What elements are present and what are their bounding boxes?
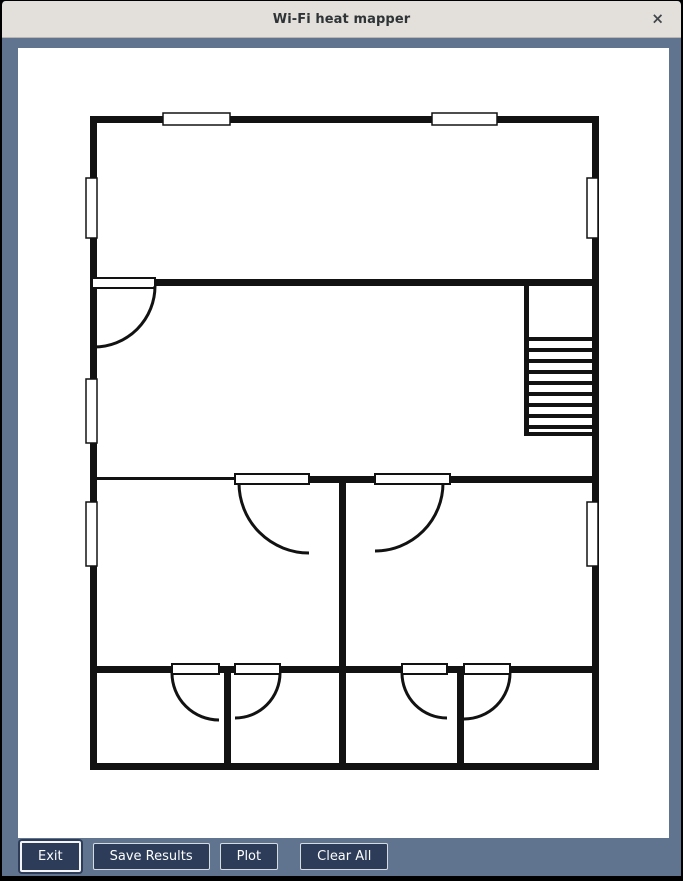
- door-swing-arc: [375, 483, 443, 551]
- door-leaf: [464, 664, 510, 674]
- door-leaf: [402, 664, 447, 674]
- plot-button[interactable]: Plot: [220, 843, 279, 870]
- stair-step: [529, 432, 592, 436]
- stair-step: [529, 414, 592, 418]
- floorplan-canvas[interactable]: [18, 48, 669, 838]
- door-leaf: [235, 664, 280, 674]
- stair-step: [529, 370, 592, 374]
- door-leaf: [235, 474, 309, 484]
- wall-segment: [155, 279, 599, 286]
- wall-segment: [524, 286, 529, 436]
- door-leaf: [375, 474, 450, 484]
- exit-button[interactable]: Exit: [20, 841, 81, 872]
- stair-step: [529, 425, 592, 429]
- window-title: Wi-Fi heat mapper: [273, 12, 411, 27]
- door-leaf: [172, 664, 219, 674]
- close-icon[interactable]: ×: [647, 10, 668, 29]
- window-marker: [86, 379, 97, 443]
- window-marker: [587, 502, 598, 566]
- title-bar[interactable]: Wi-Fi heat mapper ×: [2, 1, 681, 38]
- door-swing-arc: [235, 673, 280, 718]
- door-swing-arc: [94, 286, 155, 347]
- stair-step: [529, 359, 592, 363]
- door-leaf: [92, 278, 155, 288]
- door-swing-arc: [239, 483, 309, 553]
- stair-step: [529, 392, 592, 396]
- stair-step: [529, 381, 592, 385]
- save-results-button[interactable]: Save Results: [93, 843, 210, 870]
- wall-segment: [97, 477, 235, 480]
- wall-segment: [339, 476, 346, 770]
- window-marker: [86, 502, 97, 566]
- wall-segment: [309, 476, 599, 483]
- window-marker: [86, 178, 97, 238]
- door-swing-arc: [402, 673, 447, 718]
- window-marker: [163, 113, 230, 125]
- floorplan-svg[interactable]: [18, 48, 669, 838]
- clear-all-button[interactable]: Clear All: [300, 843, 388, 870]
- app-window: Wi-Fi heat mapper × Exit Save Results Pl…: [0, 0, 683, 881]
- window-marker: [432, 113, 497, 125]
- button-bar: Exit Save Results Plot Clear All: [2, 837, 681, 876]
- stair-step: [529, 337, 592, 341]
- door-swing-arc: [464, 673, 510, 719]
- window-marker: [587, 178, 598, 238]
- stair-step: [529, 348, 592, 352]
- stair-step: [529, 403, 592, 407]
- wall-segment: [457, 673, 464, 770]
- wall-segment: [224, 673, 231, 770]
- door-swing-arc: [172, 673, 219, 720]
